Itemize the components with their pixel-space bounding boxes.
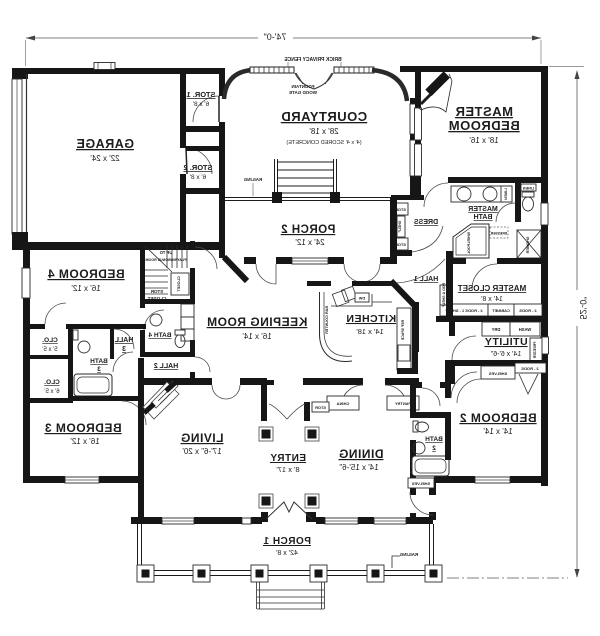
svg-text:BEDROOM 2: BEDROOM 2	[459, 411, 536, 425]
svg-text:BATH: BATH	[425, 436, 443, 443]
svg-text:2 - RODS: 2 - RODS	[521, 366, 539, 371]
svg-text:16' x 12': 16' x 12'	[71, 284, 101, 293]
svg-text:14' x 14': 14' x 14'	[483, 427, 513, 436]
svg-text:RAILING: RAILING	[243, 177, 262, 182]
svg-text:14' x 6'-6": 14' x 6'-6"	[490, 351, 521, 358]
svg-text:KEEPING ROOM: KEEPING ROOM	[207, 315, 308, 329]
svg-text:52'-0": 52'-0"	[578, 297, 588, 320]
svg-text:STOR: STOR	[315, 405, 326, 410]
svg-text:2: 2	[432, 445, 436, 452]
svg-text:14' x 18': 14' x 18'	[356, 327, 384, 336]
svg-text:(4' x 4' SCORED CONCRETE): (4' x 4' SCORED CONCRETE)	[286, 140, 361, 146]
svg-text:42' x 8': 42' x 8'	[276, 550, 298, 557]
svg-text:2 - RODS: 2 - RODS	[519, 308, 537, 313]
svg-text:16' x 14': 16' x 14'	[242, 332, 272, 341]
svg-text:DRY: DRY	[491, 327, 500, 332]
svg-text:HALL 1: HALL 1	[414, 276, 438, 283]
svg-text:BEDROOM: BEDROOM	[448, 118, 519, 133]
svg-text:BATH: BATH	[474, 214, 493, 221]
svg-text:CLOSET: CLOSET	[177, 276, 181, 292]
svg-text:STOR. 1: STOR. 1	[186, 90, 215, 99]
svg-text:6' x 5': 6' x 5'	[44, 389, 59, 395]
svg-text:CABINET: CABINET	[492, 308, 510, 313]
svg-text:DRESS: DRESS	[414, 219, 438, 226]
svg-text:REF SPACE: REF SPACE	[401, 320, 405, 341]
svg-text:LINEN: LINEN	[504, 188, 508, 200]
svg-text:8' x 17': 8' x 17'	[276, 465, 300, 474]
svg-text:FOUNTAIN: FOUNTAIN	[292, 84, 315, 89]
svg-text:22' x 24': 22' x 24'	[90, 154, 120, 163]
svg-text:PLAYRM/BONUS ROOM: PLAYRM/BONUS ROOM	[145, 258, 186, 262]
svg-text:MASTER: MASTER	[455, 104, 513, 119]
svg-text:SHOWER: SHOWER	[526, 236, 530, 253]
svg-text:74'-0": 74'-0"	[264, 32, 287, 42]
svg-text:CHINA: CHINA	[337, 401, 350, 406]
svg-text:MASTER CLOSET: MASTER CLOSET	[458, 284, 527, 293]
svg-text:RAILING: RAILING	[399, 552, 418, 557]
svg-text:16' x 12': 16' x 12'	[70, 437, 100, 446]
svg-text:STOR. 2: STOR. 2	[183, 163, 212, 172]
svg-text:PORCH 1: PORCH 1	[263, 536, 311, 547]
svg-text:5' x 5': 5' x 5'	[42, 347, 57, 353]
svg-text:WOOD GATE: WOOD GATE	[289, 90, 317, 95]
svg-text:WHIRLPOOL: WHIRLPOOL	[467, 232, 471, 255]
svg-text:14' x 15'-6": 14' x 15'-6"	[339, 463, 378, 472]
svg-text:UP TO: UP TO	[159, 250, 172, 255]
svg-text:CLO.: CLO.	[42, 337, 58, 344]
svg-text:6' x 8': 6' x 8'	[193, 101, 210, 108]
svg-text:BATH 4: BATH 4	[148, 332, 171, 339]
svg-text:SHELVES: SHELVES	[488, 371, 507, 376]
svg-text:BATH: BATH	[90, 358, 108, 365]
svg-text:DW: DW	[358, 297, 365, 301]
svg-text:PANTRY: PANTRY	[395, 401, 411, 406]
svg-text:PORCH 2: PORCH 2	[281, 224, 336, 236]
svg-text:3: 3	[122, 346, 126, 353]
svg-text:LIVING: LIVING	[180, 431, 223, 445]
svg-text:BEDROOM 3: BEDROOM 3	[44, 421, 121, 435]
svg-text:28' x 18': 28' x 18'	[309, 127, 339, 136]
svg-text:LINEN: LINEN	[523, 187, 535, 191]
svg-text:DRESSER: DRESSER	[490, 232, 507, 236]
svg-text:GARAGE: GARAGE	[76, 137, 134, 151]
svg-text:6' x 8': 6' x 8'	[190, 174, 207, 181]
svg-text:BRICK PRIVACY FENCE: BRICK PRIVACY FENCE	[284, 57, 342, 63]
svg-text:KITCHEN: KITCHEN	[346, 313, 396, 325]
svg-text:BEDROOM 4: BEDROOM 4	[47, 267, 124, 281]
svg-text:17'-6" x 20': 17'-6" x 20'	[182, 447, 222, 456]
svg-text:FREEZER: FREEZER	[533, 342, 537, 359]
svg-text:SHELVES: SHELVES	[411, 481, 430, 486]
svg-text:3: 3	[97, 366, 101, 373]
svg-text:COURTYARD: COURTYARD	[281, 109, 367, 124]
svg-text:ROD & SHELF: ROD & SHELF	[442, 283, 446, 308]
svg-text:DINING: DINING	[339, 447, 384, 461]
svg-text:STOR: STOR	[150, 289, 163, 294]
svg-text:BAR COUNTER: BAR COUNTER	[325, 306, 329, 334]
svg-text:24' x 12': 24' x 12'	[295, 238, 325, 247]
svg-text:SHELF: SHELF	[398, 221, 402, 234]
svg-text:UTILITY: UTILITY	[484, 336, 527, 348]
svg-text:WASH: WASH	[519, 327, 532, 332]
svg-text:CLO.: CLO.	[44, 379, 60, 386]
svg-text:HALL 2: HALL 2	[154, 363, 178, 370]
svg-text:18' x 16': 18' x 16'	[469, 136, 499, 145]
svg-text:ENTRY: ENTRY	[270, 453, 306, 464]
svg-text:14' x 8': 14' x 8'	[481, 296, 503, 303]
svg-text:MASTER: MASTER	[468, 206, 498, 213]
